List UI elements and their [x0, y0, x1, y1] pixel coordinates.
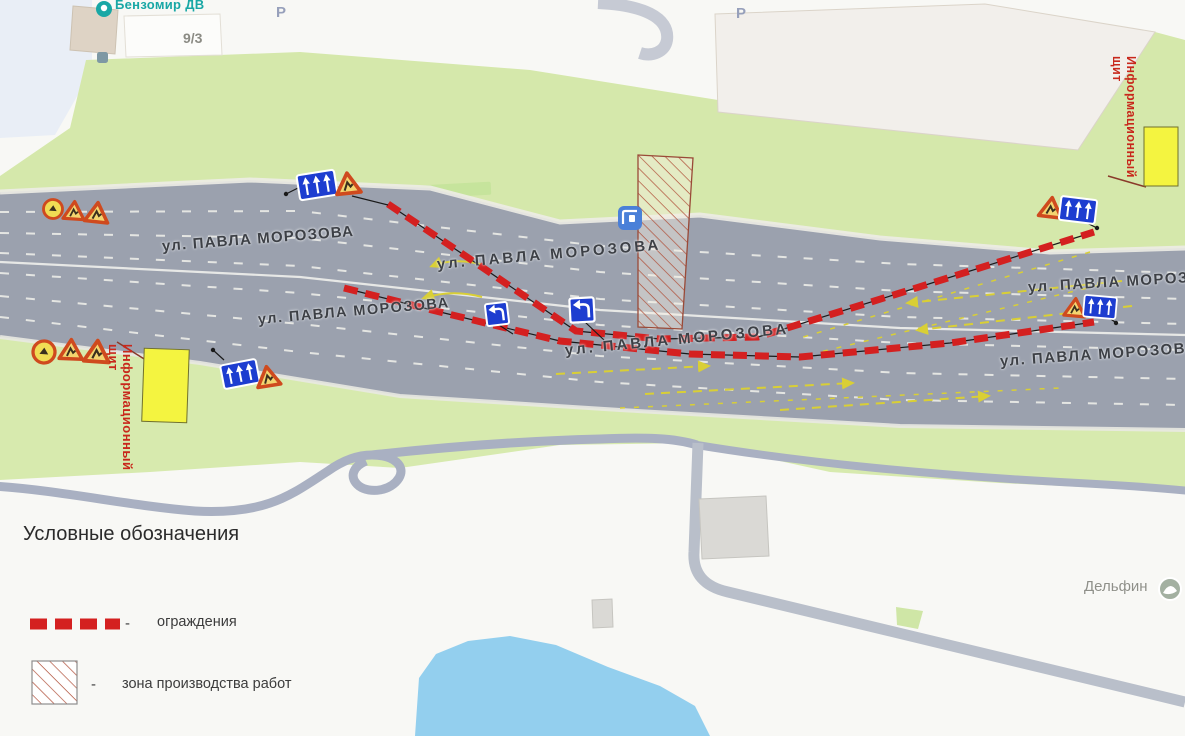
- info-board-caption-line1: Информационный: [1124, 56, 1138, 178]
- info-board-caption-right: Информационный щит: [1110, 56, 1138, 178]
- detour-sign: [569, 297, 594, 322]
- building-footprint: [699, 496, 769, 559]
- legend-item-dash: -: [125, 615, 130, 632]
- building-footprint: [592, 599, 613, 628]
- info-board-caption-line1: Информационный: [120, 344, 134, 471]
- delfin-poi-icon: [1159, 578, 1181, 600]
- building-footprint-9-3: [124, 14, 222, 57]
- parking-icon: Р: [276, 4, 286, 21]
- poi-label-delfin: Дельфин: [1084, 578, 1148, 595]
- info-board-right: [1144, 127, 1178, 186]
- round-restriction-sign: [43, 199, 63, 219]
- legend-item-workzone-label: зона производства работ: [122, 676, 291, 692]
- info-board-caption-left: Информационный щит: [106, 344, 134, 471]
- lane-direction-sign: [1083, 295, 1117, 319]
- traffic-scheme-map: Бензомир ДВ 9/3 Р Р ул. ПАВЛА МОРОЗОВА у…: [0, 0, 1185, 736]
- legend-swatch-workzone: [32, 661, 77, 704]
- round-restriction-sign: [32, 340, 55, 363]
- parking-icon: Р: [736, 5, 746, 22]
- lane-direction-sign: [1059, 196, 1098, 224]
- building-number-label: 9/3: [183, 30, 202, 46]
- legend-item-barrier-label: ограждения: [157, 614, 237, 630]
- gas-station-icon-glyph: [101, 5, 107, 11]
- lane-direction-sign: [296, 170, 337, 201]
- info-board-left: [142, 348, 190, 423]
- legend-item-dash: -: [91, 676, 96, 693]
- gas-station-label: Бензомир ДВ: [115, 0, 204, 12]
- small-poi-icon: [97, 52, 108, 63]
- info-board-caption-line2: щит: [106, 344, 120, 471]
- legend-title: Условные обозначения: [23, 523, 239, 546]
- bus-stop-icon: [618, 206, 642, 230]
- info-board-caption-line2: щит: [1110, 56, 1124, 178]
- detour-sign: [485, 302, 510, 327]
